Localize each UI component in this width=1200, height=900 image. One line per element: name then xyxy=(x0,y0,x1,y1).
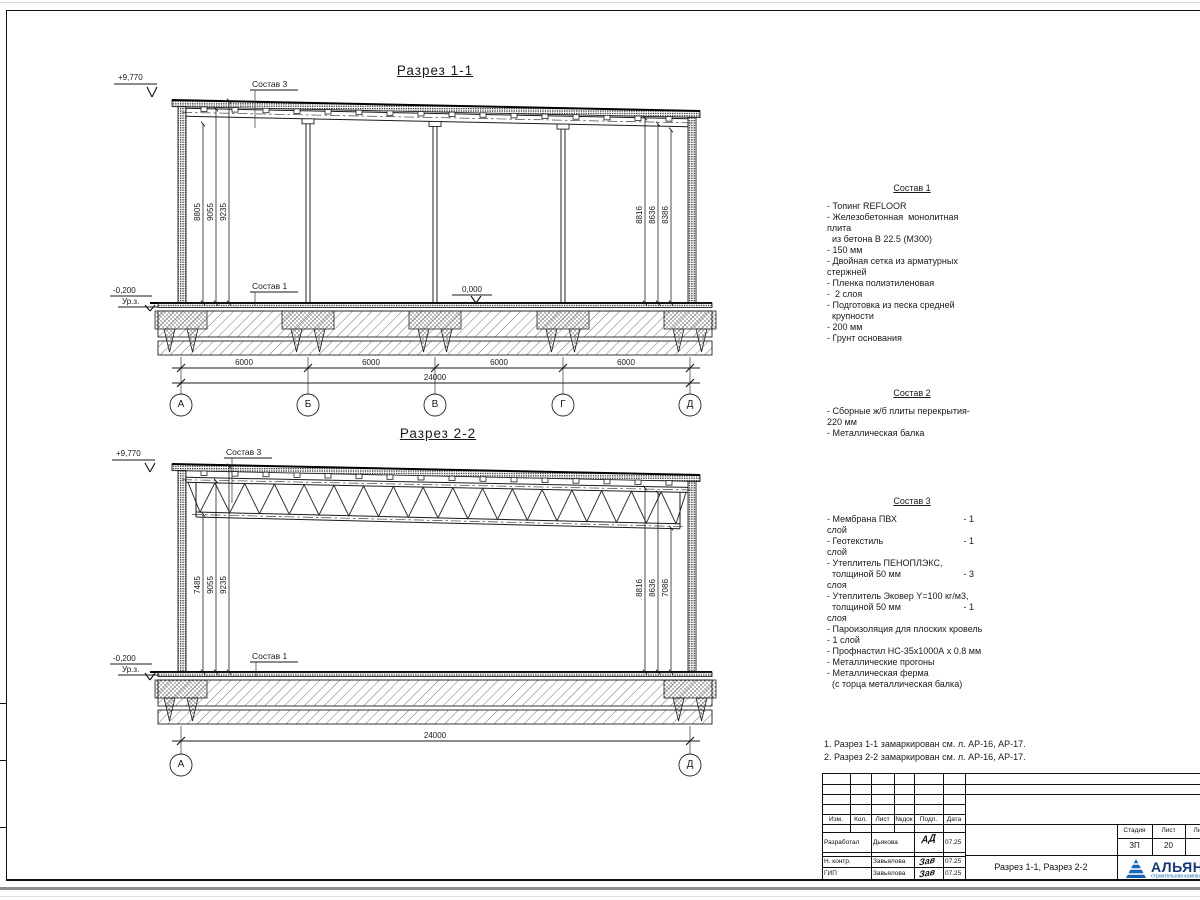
sostav1-line: - Подготовка из песка средней xyxy=(827,300,974,311)
section2-structure xyxy=(110,458,716,776)
section1-total-dim: 24000 xyxy=(415,373,455,382)
tb-stage-value: ЗП xyxy=(1117,842,1152,850)
tb-name-zavyalova-2: Завьялова xyxy=(873,870,905,878)
tb-date-gip: 07.25 xyxy=(945,870,961,878)
section2-ground-elevation: -0,200 xyxy=(113,654,136,663)
section2-total-dim: 24000 xyxy=(415,731,455,740)
section1-axis-d: Д xyxy=(679,394,701,416)
tb-doc-title: Разрез 1-1, Разрез 2-2 xyxy=(967,863,1115,871)
section1-axis-b: Б xyxy=(297,394,319,416)
sostav3-line: слой xyxy=(827,547,974,558)
sostav1-line: - 200 мм xyxy=(827,322,974,333)
sostav3-line: слоя xyxy=(827,613,974,624)
tb-date-nkontr: 07.25 xyxy=(945,858,961,866)
section1-zero-elevation: 0,000 xyxy=(452,285,492,294)
section1-dim-left-3: 9235 xyxy=(219,190,229,234)
section1-dim-right-1: 8816 xyxy=(635,193,645,237)
tb-role-nkontr: Н. контр. xyxy=(824,858,851,866)
section1-ground-elevation: -0,200 xyxy=(113,286,136,295)
tb-signature-gip: Зав xyxy=(919,867,936,878)
sostav3-line: - Мембрана ПВХ- 1 xyxy=(827,514,974,525)
sostav1-line: - Железобетонная монолитная xyxy=(827,212,974,223)
sostav1-line: - Двойная сетка из арматурных xyxy=(827,256,974,267)
tb-date-razrabotal: 07.25 xyxy=(945,839,961,847)
section1-span-dim-1: 6000 xyxy=(224,358,264,367)
section1-axis-a: А xyxy=(170,394,192,416)
tb-col-podp: Подп. xyxy=(914,816,943,824)
sostav3-line: - Утеплитель ПЕНОПЛЭКС, xyxy=(827,558,974,569)
sostav1-line: крупности xyxy=(827,311,974,322)
sostav2-line: - Металлическая балка xyxy=(827,428,974,439)
section2-dim-right-2: 8636 xyxy=(648,566,658,610)
sostav3-line: (с торца металлическая балка) xyxy=(827,679,974,690)
section2-dim-left-2: 9055 xyxy=(206,563,216,607)
section1-dim-left-2: 9055 xyxy=(206,190,216,234)
company-logo-icon xyxy=(1124,857,1148,881)
tb-sheet-value: 20 xyxy=(1152,842,1185,850)
sostav3-heading: Состав 3 xyxy=(868,496,956,507)
section2-axis-a: А xyxy=(170,754,192,776)
sostav1-line: - 2 слоя xyxy=(827,289,974,300)
section1-ground-level-label: Ур.з. xyxy=(122,297,139,306)
section1-dim-right-2: 8636 xyxy=(648,193,658,237)
section1-title: Разрез 1-1 xyxy=(385,63,485,78)
section2-roof-elevation: +9,770 xyxy=(116,449,141,458)
tb-stage-label: Стадия xyxy=(1117,827,1152,835)
footnote-1: 1. Разрез 1-1 замаркирован см. л. АР-16,… xyxy=(824,739,1026,750)
tb-col-ndok: №док xyxy=(894,816,914,824)
sostav3-line: - Пароизоляция для плоских кровель xyxy=(827,624,974,635)
tb-name-dyakova: Дьякова xyxy=(873,839,898,847)
tb-signature-razrabotal: АД xyxy=(921,835,936,846)
sostav1-line: - 150 мм xyxy=(827,245,974,256)
section1-axis-v: В xyxy=(424,394,446,416)
section1-roof-elevation: +9,770 xyxy=(118,73,143,82)
tb-col-kol: Кол. xyxy=(850,816,871,824)
section1-span-dim-2: 6000 xyxy=(351,358,391,367)
sostav2-line: 220 мм xyxy=(827,417,974,428)
sostav3-line: слой xyxy=(827,525,974,536)
sostav1-line: стержней xyxy=(827,267,974,278)
section2-callout-floor: Состав 1 xyxy=(252,651,287,661)
sostav2-heading: Состав 2 xyxy=(868,388,956,399)
sostav1-line: - Топинг REFLOOR xyxy=(827,201,974,212)
sostav3-line: - Профнастил НС-35х1000А х 0.8 мм xyxy=(827,646,974,657)
footnote-2: 2. Разрез 2-2 замаркирован см. л. АР-16,… xyxy=(824,752,1026,763)
section2-title: Разрез 2-2 xyxy=(388,426,488,441)
sostav1-line: - Грунт основания xyxy=(827,333,974,344)
company-tagline: строительная компания xyxy=(1151,874,1200,879)
sostav3-line: - 1 слой xyxy=(827,635,974,646)
section1-dim-left-1: 8805 xyxy=(193,190,203,234)
sostav1-heading: Состав 1 xyxy=(868,183,956,194)
tb-sheets-label: Листов xyxy=(1186,827,1200,835)
section1-callout-floor: Состав 1 xyxy=(252,281,287,291)
sostav3-line: толщиной 50 мм- 3 xyxy=(827,569,974,580)
tb-role-gip: ГИП xyxy=(824,870,837,878)
section1-axis-g: Г xyxy=(552,394,574,416)
section2-axis-d: Д xyxy=(679,754,701,776)
sostav1-line: из бетона В 22.5 (М300) xyxy=(827,234,974,245)
section2-dim-left-3: 9235 xyxy=(219,563,229,607)
section1-span-dim-4: 6000 xyxy=(606,358,646,367)
section2-ground-level-label: Ур.з. xyxy=(122,665,139,674)
tb-sheets-value: 20 xyxy=(1186,842,1200,850)
tb-sheet-label: Лист xyxy=(1152,827,1185,835)
sostav2-line: - Сборные ж/б плиты перекрытия- xyxy=(827,406,974,417)
sostav3-line: - Геотекстиль- 1 xyxy=(827,536,974,547)
sostav3-line: - Утеплитель Эковер Y=100 кг/м3, xyxy=(827,591,974,602)
sostav1-line: - Пленка полиэтиленовая xyxy=(827,278,974,289)
tb-signature-nkontr: Зав xyxy=(919,855,936,866)
tb-col-data: Дата xyxy=(943,816,965,824)
company-name: АЛЬЯНС xyxy=(1151,859,1200,875)
drawing-sheet: { "sections": { "s1": { "title": "Разрез… xyxy=(0,0,1200,900)
sostav1-line: плита xyxy=(827,223,974,234)
section2-dim-right-1: 8816 xyxy=(635,566,645,610)
section1-callout-roof: Состав 3 xyxy=(252,79,287,89)
tb-col-list: Лист xyxy=(871,816,894,824)
section2-callout-roof: Состав 3 xyxy=(226,447,261,457)
sostav3-line: слоя xyxy=(827,580,974,591)
sostav3-line: толщиной 50 мм- 1 xyxy=(827,602,974,613)
sostav3-line: - Металлическая ферма xyxy=(827,668,974,679)
tb-name-zavyalova-1: Завьялова xyxy=(873,858,905,866)
section2-dim-left-1: 7485 xyxy=(193,563,203,607)
tb-col-izm: Изм. xyxy=(822,816,850,824)
section1-span-dim-3: 6000 xyxy=(479,358,519,367)
tb-role-razrabotal: Разработал xyxy=(824,839,859,847)
sostav3-line: - Металлические прогоны xyxy=(827,657,974,668)
section2-dim-right-3: 7086 xyxy=(661,566,671,610)
section1-dim-right-3: 8386 xyxy=(661,193,671,237)
